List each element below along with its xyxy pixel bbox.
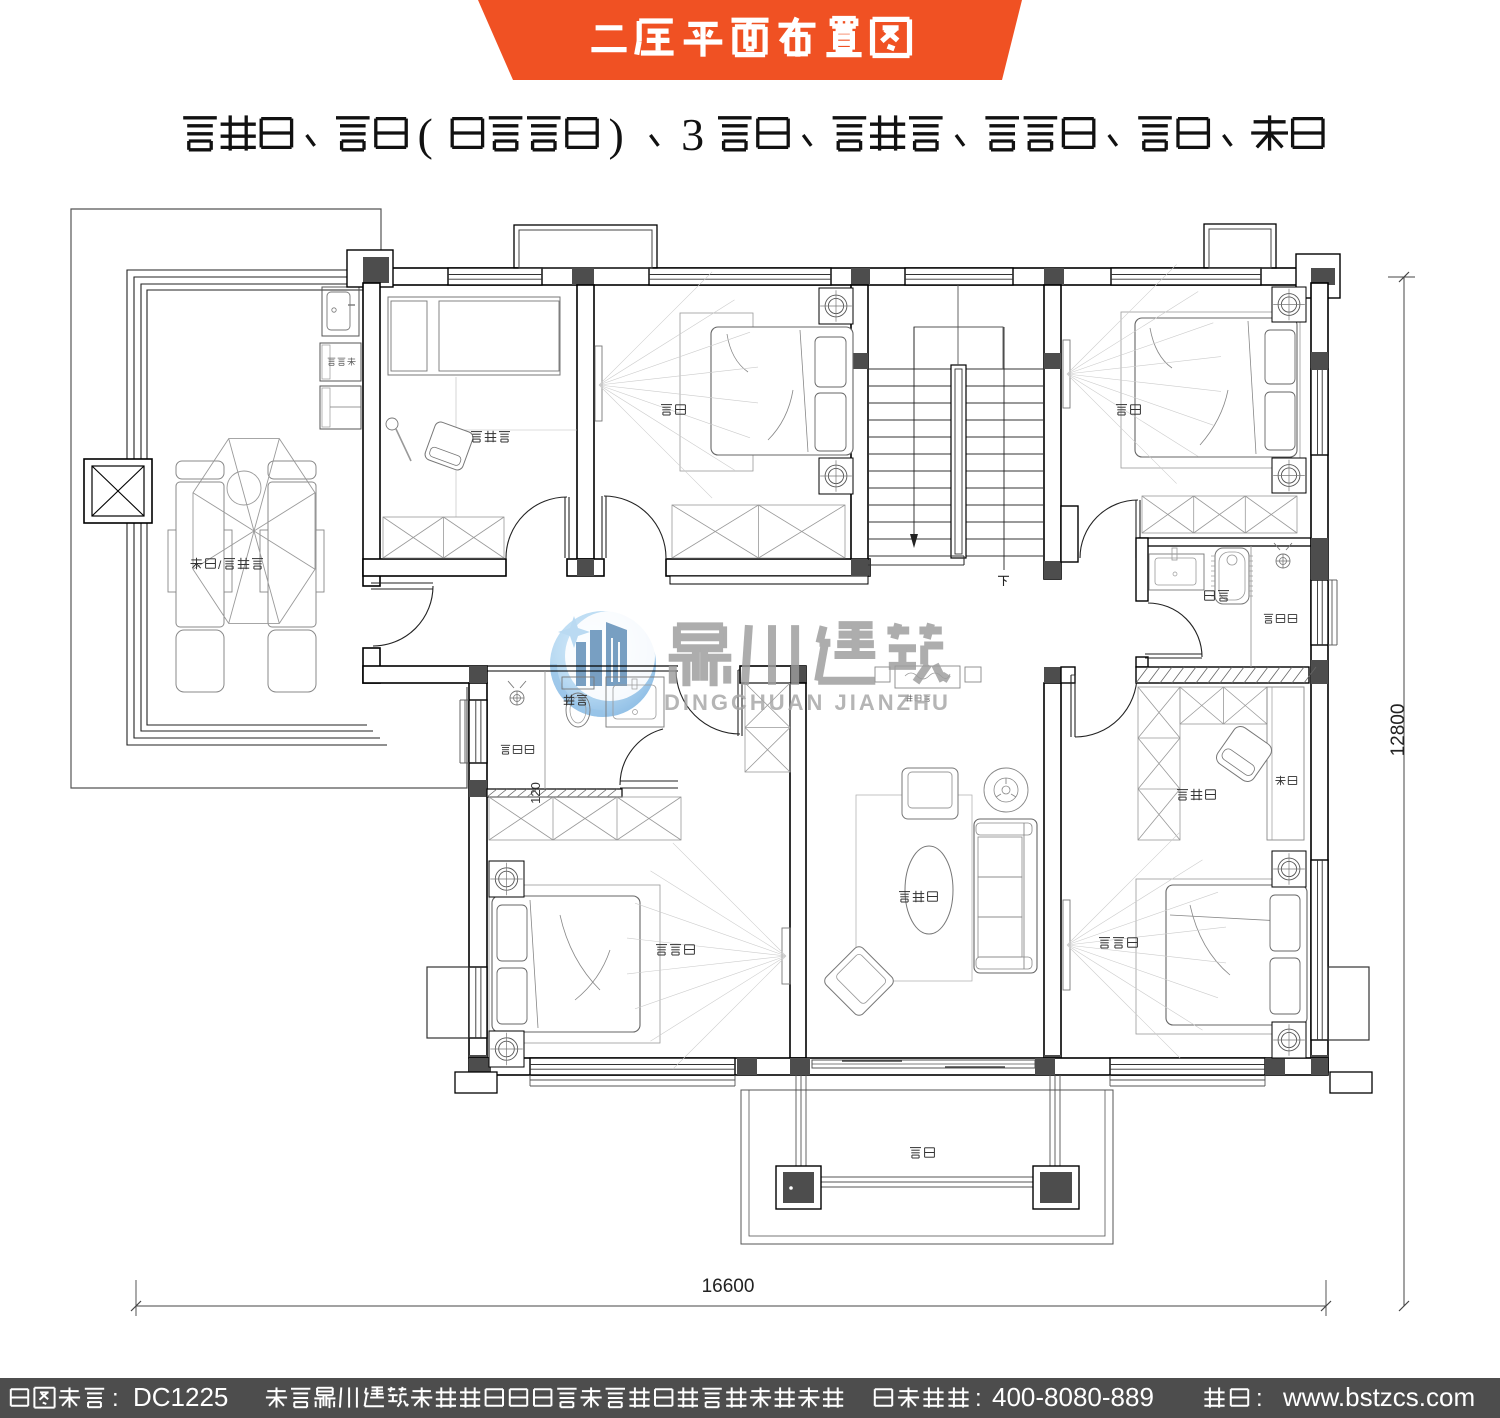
svg-text:400-8080-889: 400-8080-889 [992, 1382, 1154, 1412]
svg-text:DINGCHUAN JIANZHU: DINGCHUAN JIANZHU [664, 690, 951, 715]
svg-text:3: 3 [681, 109, 704, 160]
svg-text:16600: 16600 [702, 1276, 755, 1297]
svg-text::: : [1256, 1385, 1263, 1412]
svg-text::: : [975, 1385, 982, 1412]
svg-text:): ) [609, 109, 624, 160]
svg-text:120: 120 [528, 782, 543, 804]
svg-text:(: ( [418, 109, 433, 160]
svg-text:www.bstzcs.com: www.bstzcs.com [1282, 1382, 1475, 1412]
svg-text::: : [112, 1385, 119, 1412]
svg-text:12800: 12800 [1388, 704, 1409, 757]
svg-text:DC1225: DC1225 [133, 1382, 228, 1412]
